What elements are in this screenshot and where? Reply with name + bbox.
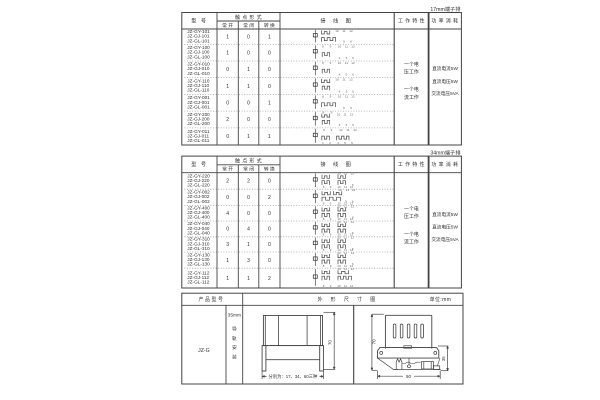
svg-text:功 率 消 耗: 功 率 消 耗 (431, 161, 458, 168)
svg-text:35: 35 (441, 356, 446, 361)
svg-text:10: 10 (335, 29, 339, 33)
svg-text:10: 10 (337, 251, 341, 255)
svg-text:分别为：17、34、60三种: 分别为：17、34、60三种 (269, 373, 318, 380)
svg-text:11: 11 (342, 29, 345, 33)
svg-text:常 开: 常 开 (222, 166, 233, 173)
svg-text:3: 3 (226, 242, 229, 248)
svg-text:9: 9 (331, 128, 333, 132)
svg-text:9: 9 (330, 45, 332, 49)
svg-text:JZ-GY-130JZ-GJ-130JZ-GL-130: JZ-GY-130JZ-GJ-130JZ-GL-130 (187, 252, 210, 266)
svg-text:0: 0 (268, 67, 271, 73)
svg-text:0: 0 (268, 211, 271, 217)
svg-text:35mm: 35mm (228, 313, 241, 319)
svg-text:1: 1 (268, 101, 271, 107)
svg-text:9: 9 (330, 95, 332, 99)
svg-text:3: 3 (247, 258, 250, 264)
svg-text:导: 导 (232, 327, 237, 333)
svg-text:1: 1 (247, 276, 250, 282)
svg-text:JZ-GY-200JZ-GJ-200JZ-GL-200: JZ-GY-200JZ-GJ-200JZ-GL-200 (187, 112, 210, 126)
svg-text:6: 6 (352, 123, 354, 127)
svg-text:1: 1 (226, 84, 229, 90)
svg-text:8: 8 (322, 110, 324, 114)
svg-text:流工作: 流工作 (404, 94, 419, 101)
svg-text:工 作 特 性: 工 作 特 性 (398, 18, 425, 25)
svg-text:0: 0 (226, 67, 229, 73)
svg-text:一个电: 一个电 (404, 205, 419, 212)
svg-text:2: 2 (247, 179, 250, 185)
svg-text:常 闭: 常 闭 (243, 166, 254, 173)
svg-text:交流电压5VA: 交流电压5VA (431, 236, 459, 243)
svg-text:0: 0 (226, 134, 229, 140)
svg-text:12: 12 (349, 29, 353, 33)
svg-text:12: 12 (350, 113, 354, 117)
svg-text:产品型号: 产品型号 (198, 296, 224, 303)
svg-text:0: 0 (247, 50, 250, 56)
svg-text:11: 11 (344, 220, 347, 224)
svg-text:0: 0 (247, 195, 250, 201)
svg-text:12: 12 (351, 172, 355, 176)
svg-text:9: 9 (330, 61, 332, 65)
svg-text:0: 0 (226, 195, 229, 201)
svg-text:0: 0 (247, 211, 250, 217)
svg-text:1: 1 (226, 276, 229, 282)
svg-text:6: 6 (350, 106, 352, 110)
svg-text:8: 8 (323, 233, 325, 237)
svg-text:11: 11 (345, 95, 348, 99)
svg-text:1: 1 (322, 141, 324, 145)
svg-text:10: 10 (337, 204, 341, 208)
svg-text:12: 12 (352, 188, 356, 192)
svg-text:10: 10 (338, 95, 342, 99)
svg-text:8: 8 (322, 45, 324, 49)
svg-text:11: 11 (346, 128, 349, 132)
svg-text:0: 0 (247, 34, 250, 40)
svg-text:11: 11 (342, 78, 345, 82)
svg-text:10: 10 (338, 45, 342, 49)
svg-text:9: 9 (330, 264, 332, 268)
svg-text:单位:mm: 单位:mm (430, 296, 452, 303)
svg-text:12: 12 (350, 284, 354, 288)
svg-text:转 换: 转 换 (264, 166, 275, 173)
svg-text:JZ-GY-220JZ-GJ-220JZ-GL-220: JZ-GY-220JZ-GJ-220JZ-GL-220 (187, 173, 210, 187)
svg-text:一个电: 一个电 (404, 61, 419, 68)
svg-text:0: 0 (247, 101, 250, 107)
svg-text:2: 2 (268, 276, 271, 282)
svg-text:0: 0 (226, 227, 229, 233)
svg-text:JZ-GY-310JZ-GJ-310JZ-GL-310: JZ-GY-310JZ-GJ-310JZ-GL-310 (187, 237, 210, 251)
svg-text:1: 1 (247, 67, 250, 73)
svg-text:12: 12 (351, 45, 355, 49)
svg-text:直流电流5W: 直流电流5W (432, 65, 458, 72)
svg-text:90: 90 (406, 374, 411, 379)
svg-text:1: 1 (268, 134, 271, 140)
svg-text:8: 8 (322, 95, 324, 99)
svg-text:型 号: 型 号 (191, 17, 207, 25)
svg-text:2: 2 (226, 117, 229, 123)
svg-text:0: 0 (268, 117, 271, 123)
svg-text:12: 12 (353, 128, 357, 132)
svg-text:9: 9 (330, 248, 332, 252)
svg-text:9: 9 (330, 233, 332, 237)
svg-text:9: 9 (330, 185, 332, 189)
svg-text:12: 12 (351, 204, 355, 208)
svg-text:9: 9 (330, 201, 332, 205)
svg-text:JZ-GY-011JZ-GJ-011JZ-GL-011: JZ-GY-011JZ-GJ-011JZ-GL-011 (187, 129, 210, 143)
svg-text:12: 12 (351, 220, 355, 224)
svg-text:交流电压5VA: 交流电压5VA (431, 90, 459, 97)
svg-text:5: 5 (343, 106, 345, 110)
svg-text:8: 8 (323, 284, 325, 288)
svg-text:2: 2 (268, 195, 271, 201)
svg-text:10: 10 (338, 61, 342, 65)
svg-text:4: 4 (339, 90, 341, 94)
svg-text:1: 1 (226, 258, 229, 264)
svg-text:4: 4 (337, 141, 339, 145)
svg-text:0: 0 (268, 84, 271, 90)
svg-text:6: 6 (352, 73, 354, 77)
svg-text:外 形 尺 寸 图: 外 形 尺 寸 图 (317, 296, 378, 303)
svg-text:压工作: 压工作 (404, 69, 419, 76)
svg-text:JZ-GY-010JZ-GJ-010JZ-GL-010: JZ-GY-010JZ-GJ-010JZ-GL-010 (187, 62, 210, 76)
svg-text:压工作: 压工作 (404, 213, 419, 220)
svg-text:8: 8 (322, 61, 324, 65)
svg-text:10: 10 (337, 267, 341, 271)
svg-text:1: 1 (247, 84, 250, 90)
svg-text:70: 70 (371, 339, 376, 345)
svg-text:0: 0 (268, 50, 271, 56)
svg-text:0: 0 (268, 227, 271, 233)
svg-text:JZ-G: JZ-G (198, 348, 210, 354)
svg-text:5: 5 (346, 90, 348, 94)
svg-text:5: 5 (344, 141, 346, 145)
svg-text:流工作: 流工作 (404, 239, 419, 246)
svg-text:常 开: 常 开 (222, 22, 233, 29)
svg-text:10: 10 (335, 78, 339, 82)
svg-text:1: 1 (268, 34, 271, 40)
svg-text:JZ-GY-101JZ-GJ-101JZ-GL-101: JZ-GY-101JZ-GJ-101JZ-GL-101 (187, 29, 210, 43)
svg-text:转 换: 转 换 (264, 22, 275, 29)
svg-text:5: 5 (346, 73, 348, 77)
svg-text:8: 8 (323, 217, 325, 221)
svg-text:8: 8 (323, 248, 325, 252)
svg-text:6: 6 (352, 56, 354, 60)
svg-text:0: 0 (226, 101, 229, 107)
svg-text:0: 0 (247, 117, 250, 123)
svg-text:11: 11 (344, 172, 347, 176)
svg-text:1: 1 (226, 50, 229, 56)
svg-text:装: 装 (232, 353, 237, 360)
svg-text:5: 5 (346, 56, 348, 60)
svg-text:4: 4 (247, 227, 250, 233)
svg-text:轨: 轨 (232, 335, 237, 342)
svg-text:JZ-GY-400JZ-GJ-400JZ-GL-400: JZ-GY-400JZ-GJ-400JZ-GL-400 (187, 206, 210, 220)
svg-text:触 点 形 式: 触 点 形 式 (235, 157, 262, 164)
svg-text:10: 10 (338, 188, 342, 192)
svg-text:JZ-GY-040JZ-GJ-040JZ-GL-040: JZ-GY-040JZ-GJ-040JZ-GL-040 (187, 221, 210, 235)
svg-text:10: 10 (337, 284, 341, 288)
svg-text:工 作 特 性: 工 作 特 性 (398, 161, 425, 168)
svg-text:JZ-GY-002JZ-GJ-002JZ-GL-002: JZ-GY-002JZ-GJ-002JZ-GL-002 (187, 190, 210, 204)
svg-text:9: 9 (330, 217, 332, 221)
svg-text:9: 9 (330, 284, 332, 288)
svg-text:JZ-GY-001JZ-GJ-001JZ-GL-001: JZ-GY-001JZ-GJ-001JZ-GL-001 (187, 95, 210, 109)
svg-text:10: 10 (337, 220, 341, 224)
svg-text:1: 1 (247, 134, 250, 140)
svg-text:8: 8 (323, 128, 325, 132)
svg-text:11: 11 (345, 61, 348, 65)
svg-text:9: 9 (331, 110, 333, 114)
svg-text:JZ-GY-110JZ-GJ-110JZ-GL-110: JZ-GY-110JZ-GJ-110JZ-GL-110 (187, 78, 210, 92)
svg-text:安: 安 (232, 344, 237, 351)
svg-text:接 线 图: 接 线 图 (320, 17, 353, 25)
svg-text:11: 11 (344, 251, 347, 255)
svg-text:0: 0 (268, 258, 271, 264)
svg-text:70: 70 (327, 340, 332, 346)
svg-text:12: 12 (351, 236, 355, 240)
svg-text:接 线 图: 接 线 图 (320, 160, 353, 168)
svg-text:功 率 消 耗: 功 率 消 耗 (431, 18, 458, 25)
svg-text:11: 11 (344, 267, 347, 271)
svg-text:11: 11 (345, 45, 348, 49)
svg-text:10: 10 (337, 113, 341, 117)
svg-text:直流电压5W: 直流电压5W (432, 224, 458, 231)
svg-text:5: 5 (343, 40, 345, 44)
svg-text:8: 8 (323, 185, 325, 189)
svg-text:11: 11 (344, 236, 347, 240)
svg-text:12: 12 (351, 95, 355, 99)
svg-text:10: 10 (337, 172, 341, 176)
svg-text:11: 11 (346, 188, 349, 192)
svg-text:4: 4 (339, 123, 341, 127)
svg-text:1: 1 (247, 242, 250, 248)
svg-text:1: 1 (226, 34, 229, 40)
svg-text:4: 4 (226, 211, 229, 217)
svg-text:直流电压5W: 直流电压5W (432, 78, 458, 85)
svg-text:34mm端子排: 34mm端子排 (430, 149, 460, 157)
svg-text:11: 11 (344, 284, 347, 288)
svg-text:型 号: 型 号 (191, 160, 207, 168)
svg-text:触 点 形 式: 触 点 形 式 (235, 14, 262, 21)
svg-text:6: 6 (352, 90, 354, 94)
svg-text:JZ-GY-112JZ-GJ-112JZ-GL-112: JZ-GY-112JZ-GJ-112JZ-GL-112 (187, 270, 210, 284)
svg-text:2: 2 (329, 141, 331, 145)
svg-text:8: 8 (323, 264, 325, 268)
svg-text:11: 11 (343, 113, 346, 117)
svg-text:0: 0 (268, 179, 271, 185)
svg-text:6: 6 (351, 141, 353, 145)
svg-text:12: 12 (351, 267, 355, 271)
svg-text:12: 12 (349, 78, 353, 82)
svg-text:2: 2 (226, 179, 229, 185)
svg-text:10: 10 (337, 236, 341, 240)
svg-text:8: 8 (323, 201, 325, 205)
svg-text:一个电: 一个电 (404, 231, 419, 238)
svg-text:一个电: 一个电 (404, 86, 419, 93)
svg-text:5: 5 (346, 123, 348, 127)
svg-text:直流电流5W: 直流电流5W (432, 211, 458, 218)
svg-text:4: 4 (339, 56, 341, 60)
svg-text:4: 4 (339, 73, 341, 77)
svg-text:10: 10 (339, 128, 343, 132)
svg-text:12: 12 (351, 251, 355, 255)
svg-text:JZ-GY-100JZ-GJ-100JZ-GL-100: JZ-GY-100JZ-GJ-100JZ-GL-100 (187, 45, 210, 59)
svg-text:6: 6 (350, 40, 352, 44)
svg-text:12: 12 (351, 61, 355, 65)
svg-text:0: 0 (268, 242, 271, 248)
svg-text:常 闭: 常 闭 (243, 22, 254, 29)
svg-text:11: 11 (344, 204, 347, 208)
